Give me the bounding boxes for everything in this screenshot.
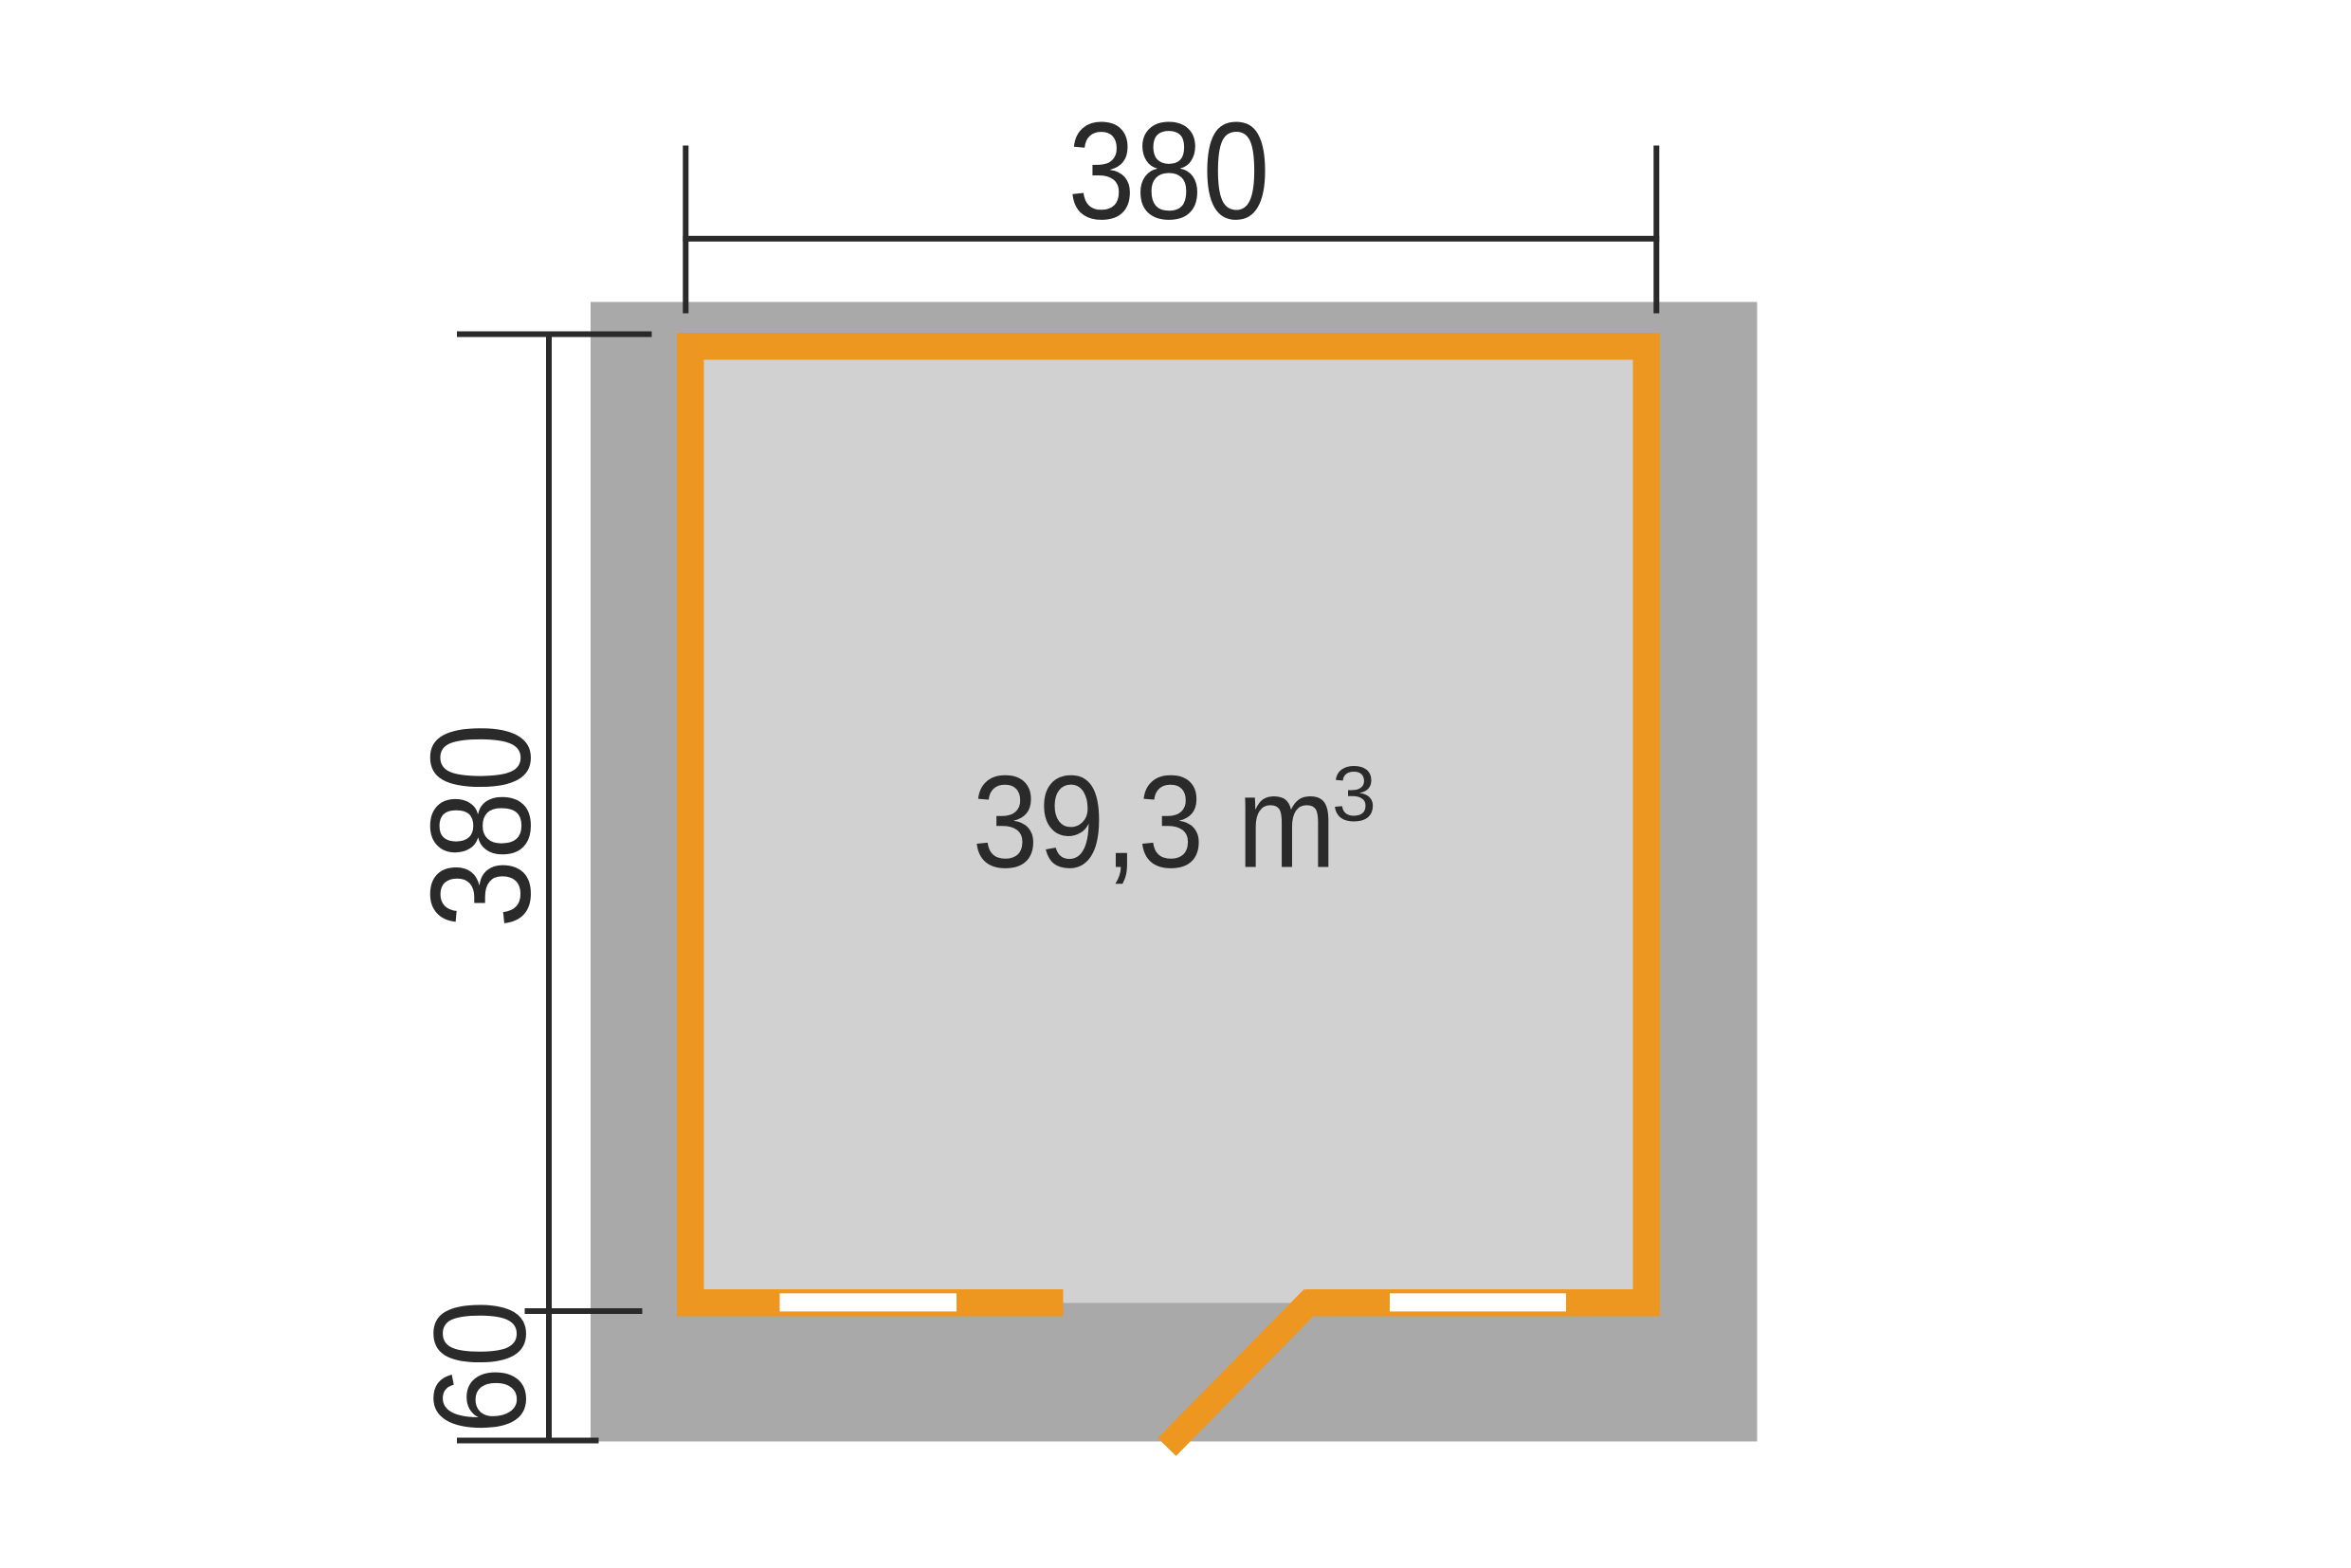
svg-text:380: 380	[1068, 94, 1270, 248]
svg-text:380: 380	[401, 723, 560, 928]
svg-text:39,3 m: 39,3 m	[973, 750, 1337, 896]
svg-text:3: 3	[1332, 750, 1376, 838]
svg-text:60: 60	[408, 1301, 554, 1434]
